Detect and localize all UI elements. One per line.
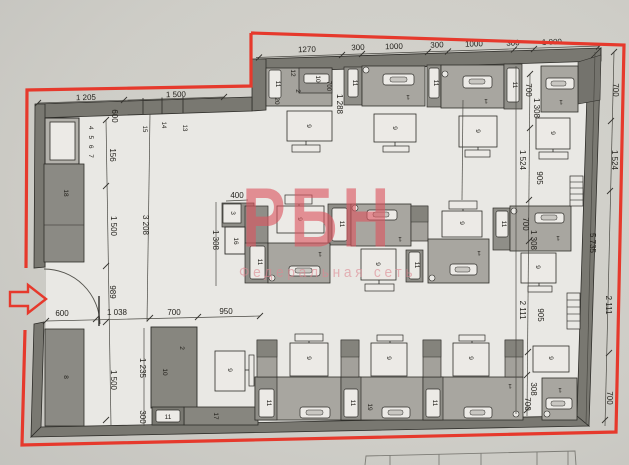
svg-text:1 500: 1 500 [109, 216, 118, 237]
svg-text:1270: 1270 [298, 45, 317, 55]
svg-text:10: 10 [314, 75, 321, 83]
svg-text:1 038: 1 038 [107, 308, 128, 317]
svg-text:9: 9 [474, 129, 481, 133]
svg-text:950: 950 [219, 307, 233, 316]
svg-text:1000: 1000 [385, 42, 404, 52]
svg-text:11: 11 [511, 82, 518, 89]
svg-text:1: 1 [406, 93, 410, 100]
svg-text:15: 15 [141, 126, 147, 133]
svg-text:11: 11 [351, 80, 358, 87]
svg-text:20: 20 [273, 97, 280, 105]
svg-text:9: 9 [391, 126, 398, 130]
svg-text:905: 905 [535, 171, 544, 185]
svg-text:1 308: 1 308 [532, 98, 541, 119]
svg-text:5 735: 5 735 [588, 233, 597, 254]
svg-text:1 308: 1 308 [529, 230, 538, 251]
svg-text:9: 9 [467, 356, 474, 360]
svg-text:16: 16 [232, 237, 239, 245]
svg-text:700: 700 [524, 83, 533, 97]
svg-text:9: 9 [458, 221, 465, 225]
svg-text:700: 700 [523, 397, 532, 411]
svg-text:700: 700 [605, 391, 614, 405]
svg-text:11: 11 [431, 400, 438, 407]
svg-text:8: 8 [62, 375, 69, 379]
svg-text:1 205: 1 205 [76, 93, 97, 103]
svg-text:3: 3 [229, 211, 236, 215]
svg-text:Федеральная сеть: Федеральная сеть [239, 265, 416, 282]
svg-text:11: 11 [500, 221, 507, 228]
svg-text:11: 11 [432, 80, 439, 87]
svg-text:9: 9 [534, 265, 541, 269]
svg-text:9: 9 [226, 368, 233, 372]
svg-text:1 288: 1 288 [335, 94, 344, 115]
svg-text:12: 12 [289, 69, 296, 77]
svg-text:11: 11 [165, 414, 172, 421]
svg-text:18: 18 [62, 189, 69, 197]
svg-text:989: 989 [108, 285, 117, 299]
svg-text:17: 17 [212, 412, 219, 420]
svg-text:1: 1 [556, 234, 560, 241]
svg-text:1: 1 [508, 382, 512, 389]
svg-text:9: 9 [305, 356, 312, 360]
svg-text:9: 9 [549, 131, 556, 135]
svg-text:2: 2 [178, 346, 185, 350]
svg-text:3 208: 3 208 [141, 215, 150, 236]
svg-text:700: 700 [325, 81, 331, 92]
svg-text:РБН: РБН [242, 171, 394, 265]
svg-text:1: 1 [484, 97, 488, 104]
svg-text:4 5 6 7: 4 5 6 7 [87, 126, 94, 160]
svg-text:600: 600 [55, 309, 69, 318]
svg-text:10: 10 [161, 368, 168, 376]
svg-text:1 524: 1 524 [610, 150, 619, 171]
svg-text:300: 300 [351, 43, 365, 52]
svg-text:1: 1 [559, 98, 563, 105]
svg-text:156: 156 [108, 148, 117, 162]
svg-text:600: 600 [110, 109, 119, 123]
svg-text:1: 1 [477, 249, 481, 256]
svg-text:700: 700 [521, 217, 530, 231]
svg-text:11: 11 [265, 400, 272, 407]
svg-text:2 111: 2 111 [518, 301, 527, 320]
svg-text:1 235: 1 235 [138, 358, 147, 379]
svg-text:2: 2 [294, 89, 301, 93]
svg-text:9: 9 [305, 124, 312, 128]
svg-text:19: 19 [366, 403, 373, 411]
svg-text:700: 700 [611, 83, 620, 97]
svg-text:9: 9 [547, 356, 554, 360]
svg-text:13: 13 [181, 125, 187, 132]
svg-text:11: 11 [349, 400, 356, 407]
svg-text:1 500: 1 500 [109, 370, 118, 391]
svg-text:1: 1 [398, 235, 402, 242]
svg-text:9: 9 [385, 356, 392, 360]
svg-text:2 111: 2 111 [604, 296, 613, 315]
svg-text:14: 14 [160, 122, 166, 129]
svg-text:300: 300 [430, 40, 444, 49]
svg-text:1 524: 1 524 [518, 150, 527, 171]
svg-text:700: 700 [167, 308, 181, 317]
svg-text:905: 905 [536, 308, 545, 322]
svg-text:1 500: 1 500 [166, 90, 187, 100]
svg-text:1: 1 [558, 386, 562, 393]
svg-text:300: 300 [138, 410, 147, 424]
svg-text:308: 308 [529, 382, 538, 396]
svg-text:1 308: 1 308 [211, 230, 220, 251]
svg-text:11: 11 [274, 81, 281, 88]
